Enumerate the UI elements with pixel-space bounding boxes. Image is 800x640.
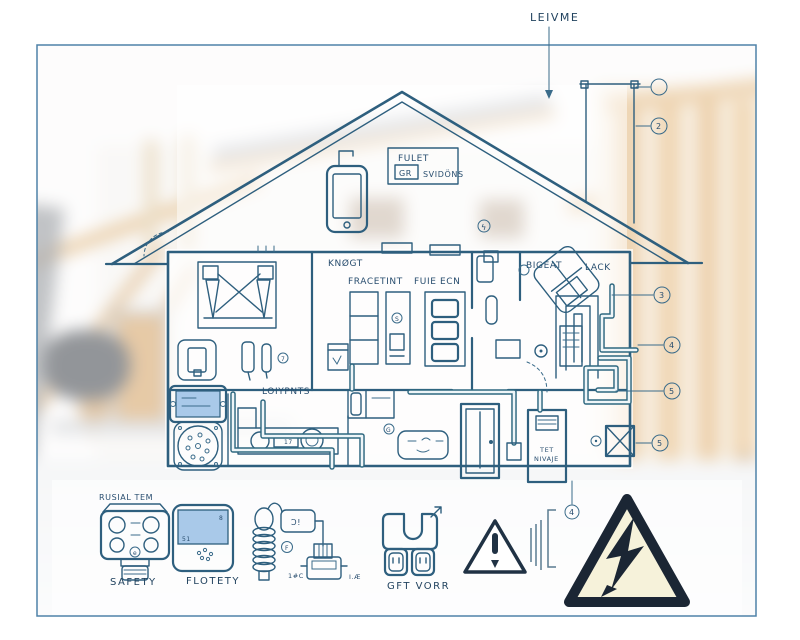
- kitchen-counter-icon: 17: [238, 408, 338, 454]
- callouts: 2 3 4 5 5 4: [565, 79, 680, 519]
- thermostat-icon: 51 8 FLOTETY: [173, 505, 240, 587]
- hall-nested-2: [566, 306, 590, 370]
- sound-lines-icon: [531, 510, 556, 570]
- roof-outer: [112, 92, 688, 264]
- heating-coil-icon: Ɔ! F 1#C I.Æ: [253, 503, 361, 581]
- marker-g: G: [386, 427, 391, 434]
- callout-7: 4: [569, 508, 575, 517]
- thermostat-label: FLOTETY: [186, 576, 240, 587]
- gfi-outlet-icon: GFT VORR: [383, 507, 450, 592]
- safety-top-label: RUSIAL TEM: [99, 493, 153, 502]
- thermostat-screen-right: 8: [219, 515, 223, 522]
- counter-tag: 17: [284, 439, 293, 446]
- room-label-hall: LACK: [585, 263, 611, 273]
- bed-icon: [348, 390, 394, 418]
- legend-row: RUSIAL TEM e SAFETY 51 8: [99, 493, 685, 602]
- side-unit-icon: [560, 326, 582, 366]
- control-panel-icon: [170, 386, 226, 422]
- outlet-label: GFT VORR: [387, 581, 450, 592]
- bottles-icon: [242, 342, 271, 380]
- safety-label: SAFETY: [110, 577, 157, 588]
- sofa-icon: [531, 243, 602, 315]
- high-voltage-triangle-icon: [569, 499, 685, 602]
- heater-tag-left: 1#C: [288, 572, 304, 580]
- heater-box-text: Ɔ!: [291, 518, 301, 527]
- heater-tag-right: I.Æ: [349, 573, 361, 581]
- callout-6: 5: [657, 439, 663, 448]
- junction-box-icon: [591, 426, 634, 456]
- vent-fan-icon: [174, 422, 222, 470]
- svg-text:7: 7: [281, 356, 285, 363]
- top-annotation-label: LEIVME: [530, 11, 579, 24]
- safety-badge: e: [133, 550, 137, 557]
- marker-seven: 7: [278, 353, 288, 363]
- lightning-marker: ϟ: [478, 220, 490, 232]
- wire-runs: [233, 286, 636, 467]
- callout-4: 4: [669, 341, 675, 350]
- table-icon: [398, 431, 448, 459]
- attic-label-box: FULET GR SVIDÖNS: [388, 148, 464, 184]
- marker-s: S: [395, 316, 399, 323]
- roof-inner: [134, 102, 668, 264]
- hall-nested-3: [574, 314, 582, 362]
- panel-line1: TET: [539, 446, 554, 454]
- safety-device-icon: RUSIAL TEM e SAFETY: [99, 493, 169, 588]
- svg-text:ϟ: ϟ: [481, 223, 487, 232]
- wardrobe-icon: [350, 292, 378, 364]
- entry-door-icon: [461, 404, 499, 478]
- callout-5: 5: [669, 387, 675, 396]
- room-label-pantry: FUIE ECN: [414, 277, 460, 287]
- curtain-window-icon: [198, 262, 276, 328]
- room-labels: KNØGT FRACETINT FUIE ECN BIGEAT LACK LOI…: [262, 258, 611, 397]
- door-swing-arc: [144, 232, 168, 256]
- callout-2: 2: [656, 122, 662, 131]
- thermostat-screen-left: 51: [182, 536, 191, 543]
- room-label-closet: FRACETINT: [348, 277, 403, 287]
- caution-triangle-icon: [465, 521, 525, 572]
- tall-unit-icon: S: [386, 292, 410, 364]
- top-annotation: LEIVME: [530, 11, 579, 99]
- cabinet-icon: [425, 292, 465, 366]
- callout-3: 3: [659, 291, 665, 300]
- panel-line2: NIVAJE: [534, 455, 559, 463]
- attic-box-icon: GR: [399, 169, 412, 178]
- blueprint-layer: LEIVME FULET GR SVIDÖNS ϟ: [0, 0, 800, 640]
- plug-icon: [301, 544, 347, 579]
- attic-devices: FULET GR SVIDÖNS ϟ: [327, 148, 490, 232]
- smartphone-icon: [327, 151, 367, 232]
- leader-arrow-icon: [545, 90, 553, 99]
- small-appliance-icon: [328, 344, 348, 370]
- heater-circle-text: F: [285, 545, 289, 552]
- attic-box-subtitle: SVIDÖNS: [423, 169, 464, 179]
- room-label-kngot: KNØGT: [328, 258, 363, 269]
- attic-box-title: FULET: [398, 154, 429, 164]
- closet-door-icon: [178, 340, 216, 380]
- room-label-kitchen: LOIYPNTS: [262, 387, 310, 397]
- utility-panel-icon: TET NIVAJE: [528, 410, 566, 482]
